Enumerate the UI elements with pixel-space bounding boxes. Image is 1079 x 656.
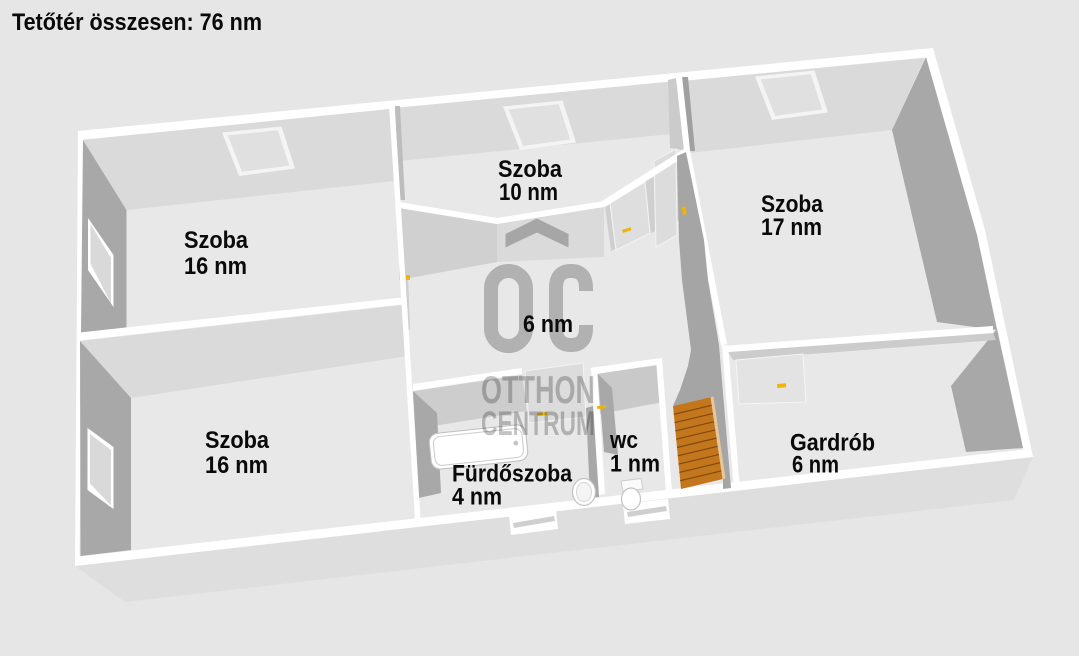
svg-text:Szoba: Szoba	[184, 227, 248, 254]
svg-text:Szoba: Szoba	[205, 427, 269, 454]
svg-text:CENTRUM: CENTRUM	[481, 405, 595, 443]
svg-text:16 nm: 16 nm	[184, 253, 247, 280]
svg-text:10 nm: 10 nm	[499, 179, 558, 206]
svg-text:17 nm: 17 nm	[761, 214, 822, 241]
svg-text:6 nm: 6 nm	[792, 452, 839, 479]
svg-text:16 nm: 16 nm	[205, 452, 268, 479]
svg-text:6 nm: 6 nm	[523, 311, 573, 338]
svg-text:Tetőtér összesen: 76 nm: Tetőtér összesen: 76 nm	[12, 9, 262, 36]
svg-text:4 nm: 4 nm	[452, 484, 502, 511]
svg-text:1 nm: 1 nm	[610, 451, 660, 478]
